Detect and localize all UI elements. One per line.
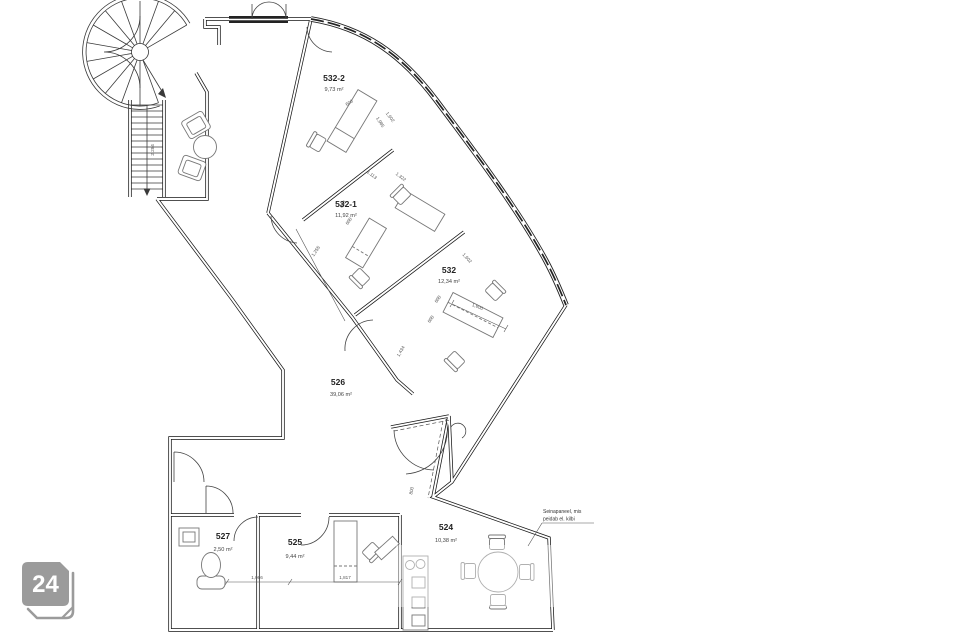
office-chair <box>349 267 371 289</box>
room-area: 9,73 m² <box>325 87 344 93</box>
room-number: 532 <box>442 265 456 275</box>
dim-label: 1,255 <box>310 245 321 258</box>
dim-label: 600 <box>427 314 436 324</box>
dim-label: 600 <box>434 294 443 304</box>
logo-city24: 24 <box>22 562 73 618</box>
dim-label: 1,985 <box>375 116 386 129</box>
logo-number: 24 <box>32 571 59 598</box>
desk <box>346 218 387 268</box>
room-number: 524 <box>439 522 453 532</box>
watermark-fade <box>396 545 564 607</box>
sink <box>179 528 199 546</box>
room-area: 39,06 m² <box>330 392 352 398</box>
wall-panel-note: Seinapaneel, mis peidab el. kilbi <box>528 509 594 546</box>
dim-label: 1,817 <box>339 575 351 580</box>
dim-label: 2.284 <box>150 144 155 156</box>
dim-label: 800 <box>408 486 414 495</box>
stair-direction-arrow <box>158 88 166 98</box>
floor-plan-svg: 600 1,985 1,113 1,322 600 600 1,255 1,60… <box>0 0 960 640</box>
note-line-1: Seinapaneel, mis <box>543 509 582 515</box>
room-number: 525 <box>288 537 302 547</box>
office-chair <box>444 350 466 372</box>
note-line-2: peidab el. kilbi <box>543 517 575 523</box>
desk <box>334 521 357 582</box>
room-number: 527 <box>216 531 230 541</box>
desk <box>327 90 377 153</box>
room-number: 532-2 <box>323 73 345 83</box>
spiral-staircase <box>83 0 190 109</box>
room-number: 532-1 <box>335 199 357 209</box>
side-table <box>194 136 217 159</box>
room-area: 10,38 m² <box>435 538 457 544</box>
office-chair <box>484 280 506 302</box>
dim-label: 1,602 <box>385 111 396 124</box>
dim-label: 1,434 <box>396 345 406 358</box>
room-area: 9,44 m² <box>286 554 305 560</box>
floor-plan-page: 600 1,985 1,113 1,322 600 600 1,255 1,60… <box>0 0 960 640</box>
dim-label: 1,322 <box>395 171 408 182</box>
dim-label: 1,113 <box>366 169 378 180</box>
dim-label: 1,066 <box>251 575 263 580</box>
straight-staircase <box>132 105 163 196</box>
room-area: 12,34 m² <box>438 279 460 285</box>
office-chair <box>306 131 327 153</box>
room-number: 526 <box>331 377 345 387</box>
dim-label: 1,602 <box>461 252 473 264</box>
room-area: 2,50 m² <box>214 547 233 553</box>
room-area: 11,92 m² <box>335 213 357 219</box>
toilet <box>197 553 225 590</box>
